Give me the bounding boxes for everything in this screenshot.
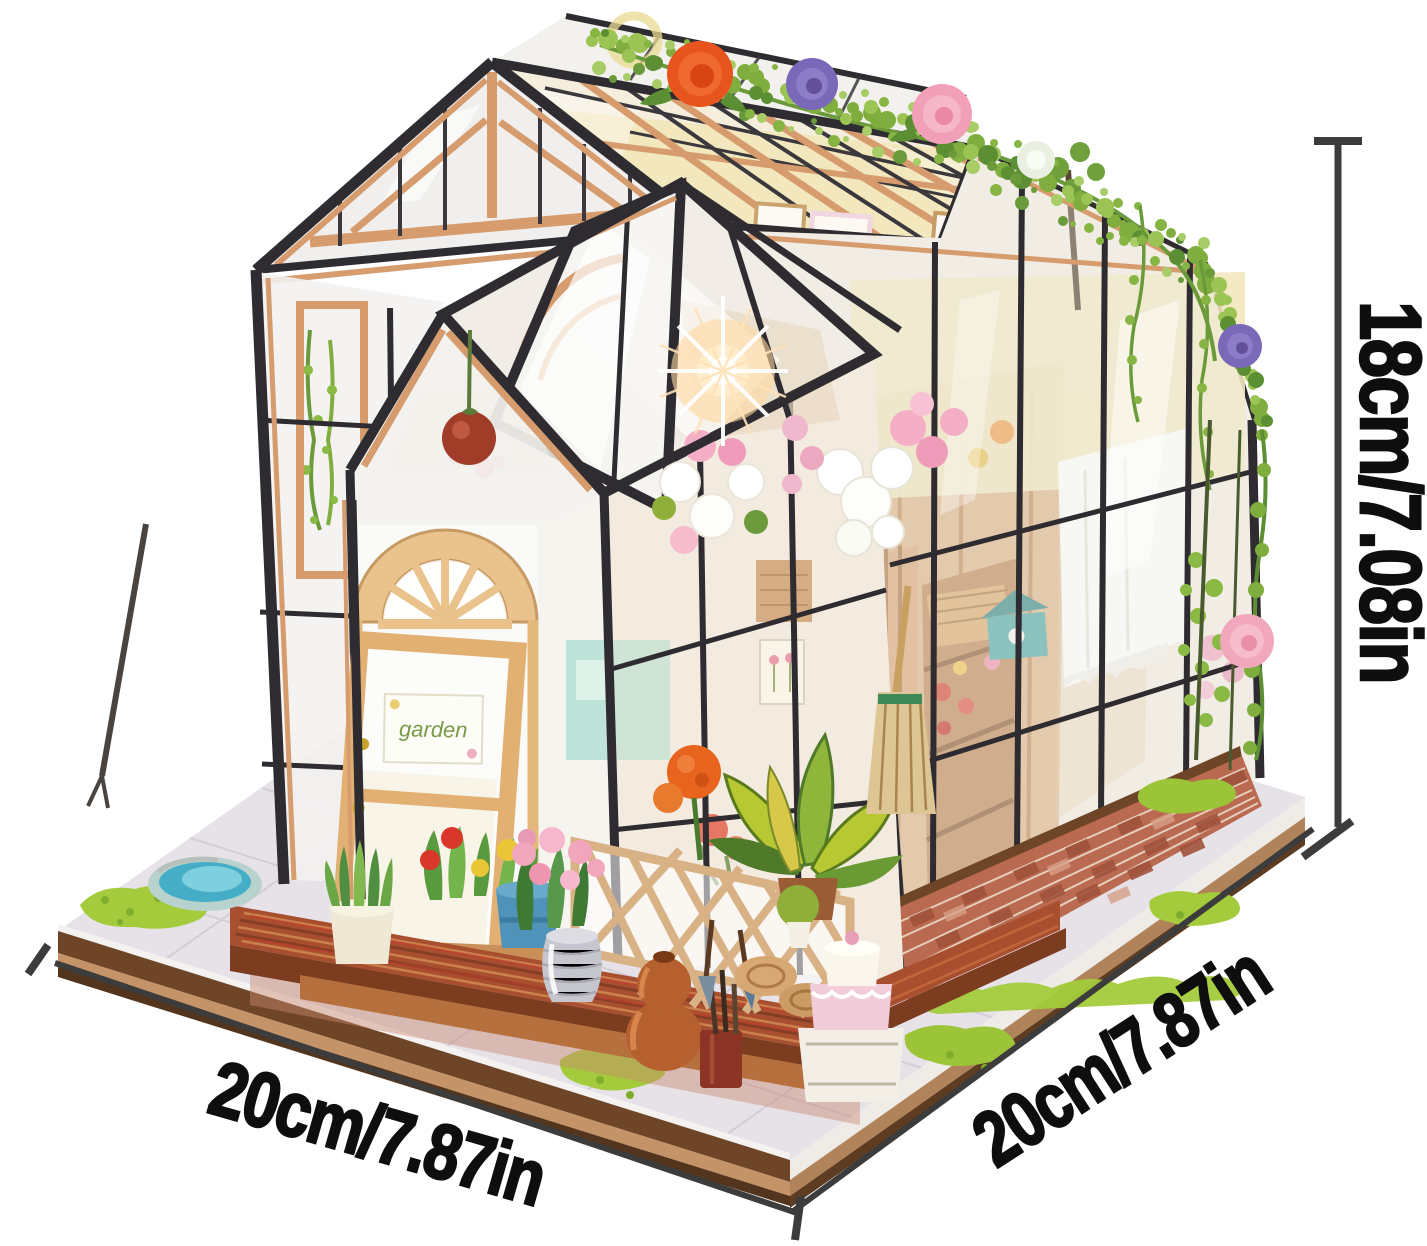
svg-text:garden: garden	[399, 716, 468, 742]
svg-text:18cm/7.08in: 18cm/7.08in	[1342, 301, 1427, 683]
